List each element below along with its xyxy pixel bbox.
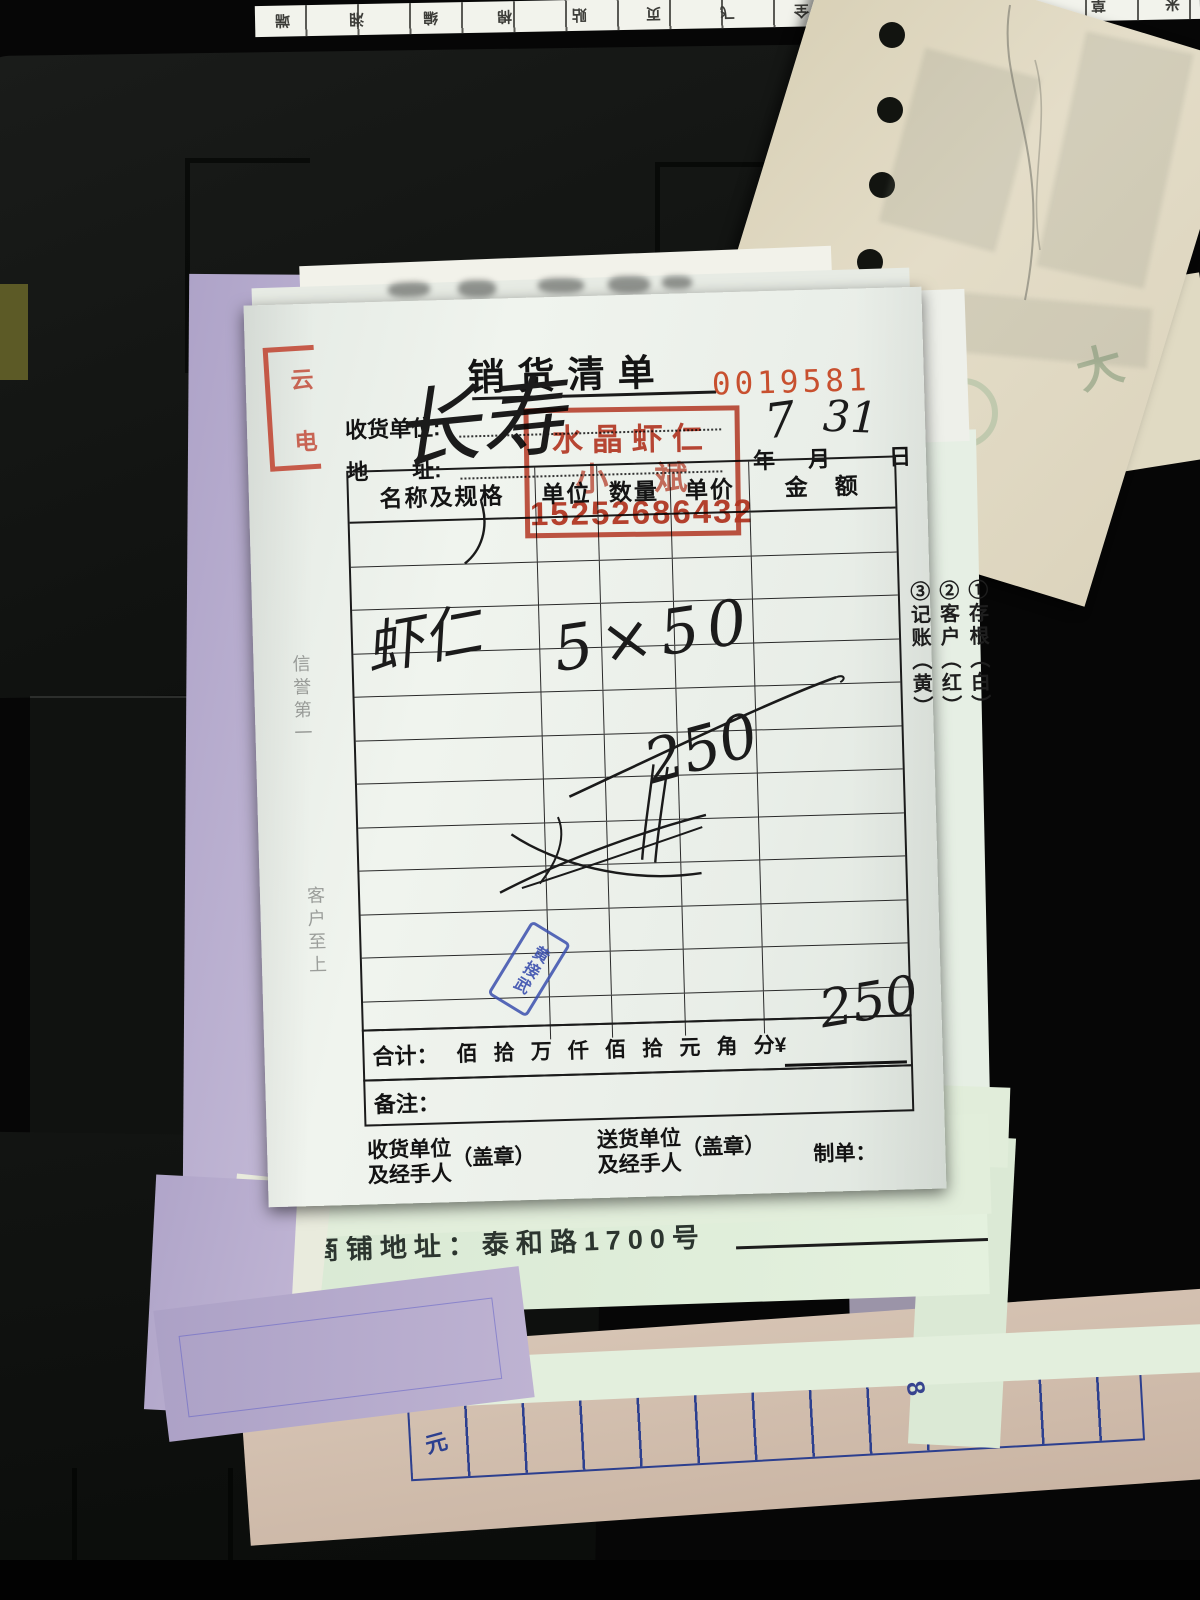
photo-of-receipt-stack: 端 湘 编 棉 贴 页 飞 全 伟 大 菜 草 米 大 元 — [0, 0, 1200, 1600]
stamp-phone-number: 15252686432 — [530, 492, 737, 533]
total-label: 合计： — [372, 1037, 439, 1071]
address-underline — [736, 1238, 988, 1249]
maker-label: 制单： — [813, 1136, 877, 1168]
amount-unit-scale: 佰 拾 万 仟 佰 拾 元 角 分¥ — [456, 1029, 787, 1068]
stamp-char: 电 — [293, 422, 318, 457]
form-fragment-char: 编 — [423, 8, 438, 29]
cut-off-text-smudge — [538, 278, 584, 293]
margin-motto-top: 信誉第一 — [287, 654, 316, 747]
yuan-cell-label: 元 — [421, 1424, 451, 1461]
remarks-label: 备注： — [373, 1085, 440, 1119]
col-header-amount: 金 额 — [749, 458, 895, 511]
form-fragment-char: 贴 — [571, 5, 586, 26]
faint-pen-scribble — [940, 0, 1140, 320]
form-fragment-char: 米 — [1165, 0, 1180, 15]
form-fragment-char: 湘 — [349, 9, 364, 30]
copy-stub: ①存根（白） — [961, 579, 994, 718]
sales-list-receipt: 销货清单 0019581 收货单位: 地 址: 年 月 日 7 31 云 电 名… — [244, 287, 947, 1208]
partial-red-stamp: 云 电 — [263, 345, 322, 472]
seal-note: （盖章） — [681, 1129, 766, 1161]
handwritten-total: 250 — [816, 969, 923, 1037]
form-fragment-char: 端 — [275, 10, 290, 31]
bottom-shadow — [0, 1560, 1200, 1600]
stamp-char: 云 — [289, 360, 314, 395]
form-fragment-char: 页 — [646, 3, 661, 24]
handwritten-month: 7 — [762, 395, 799, 447]
form-fragment-char: 飞 — [720, 2, 735, 23]
sender-sign-block: 送货单位及经手人 （盖章） — [597, 1123, 766, 1178]
receiver-sign-block: 收货单位及经手人 （盖章） — [367, 1134, 536, 1189]
seal-note: （盖章） — [451, 1140, 536, 1172]
cut-off-text-smudge — [458, 280, 496, 297]
cut-off-text-smudge — [608, 276, 650, 293]
form-fragment-char: 棉 — [497, 6, 512, 27]
vendor-red-stamp: 水晶虾仁 小斌 15252686432 — [523, 405, 741, 538]
margin-motto-bottom: 客户至上 — [302, 886, 331, 979]
punch-hole — [877, 97, 903, 123]
cut-off-text-smudge — [662, 276, 692, 289]
handwritten-day: 31 — [822, 396, 878, 441]
punch-hole — [879, 22, 905, 48]
form-fragment-char: 全 — [794, 0, 809, 21]
copy-ledger: ③记账（黄） — [903, 581, 936, 720]
copies-legend: ①存根（白） ②客户（红） ③记账（黄） — [903, 579, 994, 743]
copy-customer: ②客户（红） — [932, 580, 965, 719]
blue-form-border — [179, 1298, 503, 1418]
items-table: 名称及规格 单位 数量 单价 金 额 — [346, 455, 911, 1031]
olive-folder-tab — [0, 284, 28, 380]
